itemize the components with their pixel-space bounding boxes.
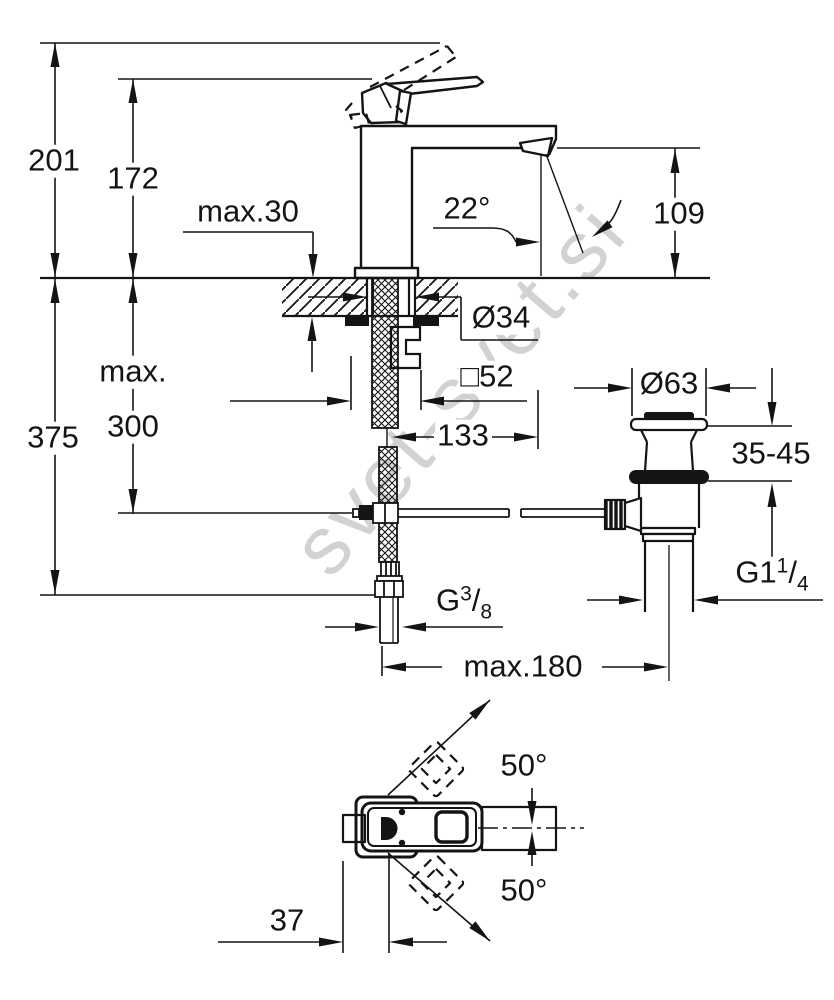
- drain-thread-denominator: 4: [797, 573, 809, 596]
- faucet-dimension-drawing: [0, 0, 834, 1000]
- dim-hose-thread-label: G3/8: [434, 585, 494, 618]
- dim-total-depth-label: 375: [25, 422, 81, 455]
- drain-thread-prefix: G1: [735, 555, 776, 590]
- dim-spout-height-label: 172: [105, 163, 161, 196]
- dim-deck-thickness-label: max.30: [195, 196, 301, 229]
- faucet-side-view: [346, 46, 583, 278]
- dim-spout-reach-label: 133: [435, 420, 491, 453]
- dim-handle-angle-top-label: 50°: [499, 750, 550, 783]
- dim-spout-angle-label: 22°: [442, 193, 493, 226]
- dim-max-spread-label: max.180: [462, 651, 585, 684]
- drain-oring: [629, 470, 709, 484]
- hose-nut: [375, 581, 403, 597]
- dim-body-square-label: □52: [458, 361, 515, 394]
- dim-drain-diameter-label: Ø63: [638, 368, 701, 401]
- dim-hose-max-word-label: max.: [97, 356, 168, 389]
- dim-spout-clearance-label: 109: [651, 198, 707, 231]
- dim-overall-height-label: 201: [26, 145, 82, 178]
- drain-flange: [631, 419, 707, 430]
- hose-thread-numerator: 3: [460, 583, 472, 606]
- hose-thread-denominator: 8: [480, 601, 492, 624]
- water-stream-angled: [546, 154, 583, 253]
- dim-hole-diameter-label: Ø34: [470, 302, 533, 335]
- hose-thread-prefix: G: [436, 583, 460, 618]
- pop-up-drain: [605, 412, 709, 681]
- dim-drain-thread-label: G11/4: [733, 557, 810, 590]
- dim-handle-offset-label: 37: [268, 905, 306, 938]
- drain-thread-numerator: 1: [777, 555, 789, 578]
- supply-hose: [372, 278, 403, 643]
- drain-knob: [605, 500, 625, 529]
- dim-hose-length-label: 300: [105, 411, 161, 444]
- dim-drain-range-label: 35-45: [729, 438, 812, 471]
- pull-rod: [353, 503, 606, 523]
- drain-thread-slash: /: [788, 555, 797, 590]
- technical-drawing-page: svet-svet.si: [0, 0, 834, 1000]
- dim-handle-angle-bottom-label: 50°: [499, 875, 550, 908]
